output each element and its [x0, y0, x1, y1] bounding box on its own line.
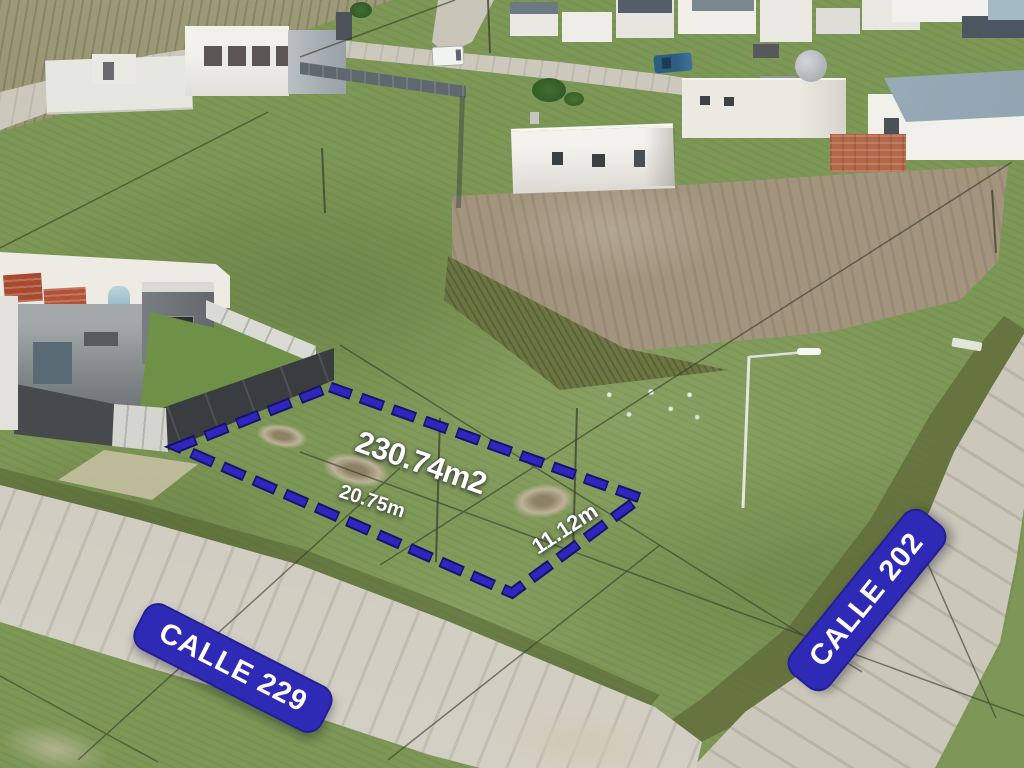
small-house-window [552, 152, 563, 165]
house-window [700, 96, 710, 105]
wildflowers [596, 378, 706, 434]
white-van [431, 45, 464, 67]
house-roof [510, 2, 558, 14]
house-roof [618, 0, 672, 13]
dark-structure-cap [142, 282, 214, 292]
white-wall-edge [0, 296, 18, 430]
house [760, 0, 812, 42]
aerial-lot-photo: 230.74m2 20.75m 11.12m CALLE 229 CALLE 2… [0, 0, 1024, 768]
garden-bush [532, 78, 566, 102]
garden-bush [564, 92, 584, 106]
chimney [336, 12, 352, 40]
house-roof [692, 0, 754, 11]
small-house-shade [645, 128, 675, 186]
house [682, 78, 846, 138]
blue-pickup [653, 52, 692, 73]
gray-house-window [84, 332, 118, 346]
garage-door [753, 44, 779, 58]
gray-house-door [33, 342, 72, 384]
pickup-window [662, 57, 672, 69]
roof-vent [530, 112, 539, 124]
house-window [724, 97, 734, 106]
small-house-door [634, 150, 645, 167]
shed [92, 54, 136, 84]
house-openings [204, 46, 292, 66]
brick-wall [830, 134, 906, 172]
house [562, 12, 612, 42]
house [816, 8, 860, 34]
house-roof [988, 0, 1024, 20]
shed-door [103, 62, 114, 80]
field-bush [350, 2, 372, 18]
small-house-window [592, 154, 605, 167]
van-windshield [456, 49, 462, 60]
rooftop-tank [795, 50, 827, 82]
